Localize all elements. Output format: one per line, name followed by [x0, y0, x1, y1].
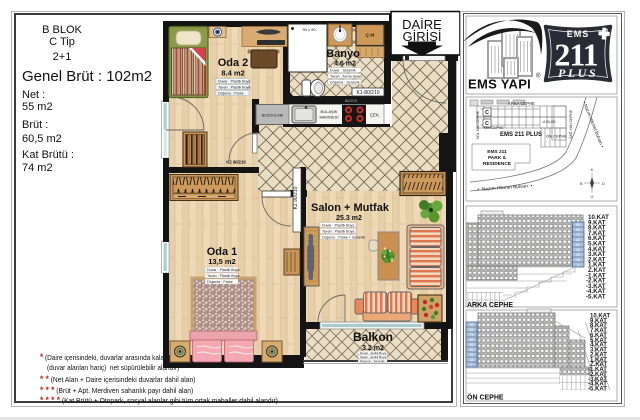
- svg-text:ARKA CEPHE: ARKA CEPHE: [508, 101, 535, 106]
- svg-text:Döşeme : Parke: Döşeme : Parke: [218, 91, 244, 95]
- svg-text:-5.KAT: -5.KAT: [586, 294, 606, 301]
- svg-text:K2 90/210: K2 90/210: [226, 160, 246, 165]
- svg-text:Oda 2: Oda 2: [218, 57, 249, 69]
- svg-text:ÇEK.: ÇEK.: [370, 113, 381, 118]
- svg-text:Duvar : Plastik Boya: Duvar : Plastik Boya: [207, 268, 239, 272]
- svg-text:84: 84: [576, 228, 580, 232]
- svg-text:95: 95: [470, 323, 474, 327]
- svg-text:29: 29: [470, 353, 474, 357]
- svg-text:95: 95: [576, 223, 580, 227]
- svg-text:7: 7: [471, 364, 473, 368]
- svg-text:RESIDENCE: RESIDENCE: [483, 161, 512, 167]
- svg-text:18: 18: [470, 358, 474, 362]
- svg-text:-5.KAT: -5.KAT: [588, 387, 607, 393]
- svg-text:PLUS: PLUS: [558, 66, 598, 80]
- svg-text:51: 51: [470, 343, 474, 347]
- svg-text:K: K: [591, 168, 594, 172]
- svg-text:SOL YAN CEPHE: SOL YAN CEPHE: [476, 110, 480, 139]
- svg-text:K2 90/210: K2 90/210: [293, 186, 299, 209]
- svg-text:4.6 m2: 4.6 m2: [334, 61, 356, 68]
- svg-text:Ç.M: Ç.M: [366, 33, 375, 39]
- svg-text:EMS 211: EMS 211: [487, 149, 507, 155]
- svg-text:Duvar : Plastik Boya: Duvar : Plastik Boya: [322, 223, 354, 227]
- svg-text:SAĞ YAN CEPHE: SAĞ YAN CEPHE: [568, 109, 573, 139]
- svg-text:Banyo: Banyo: [326, 48, 360, 60]
- svg-text:Döşeme : Parke + Seramik: Döşeme : Parke + Seramik: [322, 235, 365, 239]
- svg-text:A BLOK: A BLOK: [543, 120, 556, 124]
- svg-text:G: G: [591, 195, 594, 199]
- svg-text:Tavan : Plastik Boya: Tavan : Plastik Boya: [207, 274, 239, 278]
- svg-text:90 x 90: 90 x 90: [302, 27, 316, 32]
- svg-text:62: 62: [576, 238, 580, 242]
- svg-text:PARK &: PARK &: [488, 155, 507, 161]
- svg-text:18: 18: [576, 258, 580, 262]
- svg-text:Duvar : Plastik Boya: Duvar : Plastik Boya: [218, 79, 250, 83]
- svg-text:Döşeme : Seramik: Döşeme : Seramik: [360, 359, 385, 363]
- svg-text:Tavan : Asma tavan: Tavan : Asma tavan: [330, 74, 361, 78]
- svg-text:EMS YAPI: EMS YAPI: [468, 77, 531, 92]
- svg-text:BULAŞIK: BULAŞIK: [321, 109, 338, 114]
- svg-text:Salon + Mutfak: Salon + Mutfak: [311, 202, 390, 214]
- svg-text:K1-80/210: K1-80/210: [356, 90, 379, 96]
- svg-text:ARKA CEPHE: ARKA CEPHE: [467, 302, 513, 309]
- svg-text:EMS 211 PLUS: EMS 211 PLUS: [500, 132, 542, 138]
- svg-text:40: 40: [576, 248, 580, 252]
- svg-text:ÖN CEPHE: ÖN CEPHE: [546, 134, 567, 139]
- svg-text:Döşeme : Parke: Döşeme : Parke: [207, 280, 233, 284]
- svg-text:BUZDOLABI: BUZDOLABI: [262, 114, 284, 118]
- svg-text:25.3 m2: 25.3 m2: [336, 215, 362, 222]
- svg-text:D: D: [602, 182, 605, 186]
- svg-text:73: 73: [470, 333, 474, 337]
- svg-text:®: ®: [536, 73, 541, 80]
- svg-text:40: 40: [470, 348, 474, 352]
- svg-text:80/210: 80/210: [345, 98, 358, 103]
- svg-text:62: 62: [470, 338, 474, 342]
- svg-text:84: 84: [470, 328, 474, 332]
- svg-text:Balkon: Balkon: [353, 330, 393, 344]
- svg-text:Duvar : Seramik: Duvar : Seramik: [330, 68, 356, 72]
- svg-text:13,5 m2: 13,5 m2: [208, 257, 236, 266]
- svg-text:8.4 m2: 8.4 m2: [221, 69, 244, 78]
- svg-text:Döşeme : Seramik: Döşeme : Seramik: [330, 80, 360, 84]
- svg-text:7: 7: [577, 264, 579, 268]
- svg-text:MAKİNESİ: MAKİNESİ: [319, 115, 338, 120]
- svg-text:C: C: [485, 110, 489, 116]
- svg-text:ÖN CEPHE: ÖN CEPHE: [467, 393, 504, 402]
- svg-text:ÖN CEPHE: ÖN CEPHE: [484, 126, 504, 130]
- svg-text:29: 29: [576, 253, 580, 257]
- svg-text:73: 73: [576, 233, 580, 237]
- svg-text:Tavan : Plastik Boya: Tavan : Plastik Boya: [218, 85, 250, 89]
- svg-text:Tavan : Plastik Boya: Tavan : Plastik Boya: [322, 229, 354, 233]
- svg-text:51: 51: [576, 243, 580, 247]
